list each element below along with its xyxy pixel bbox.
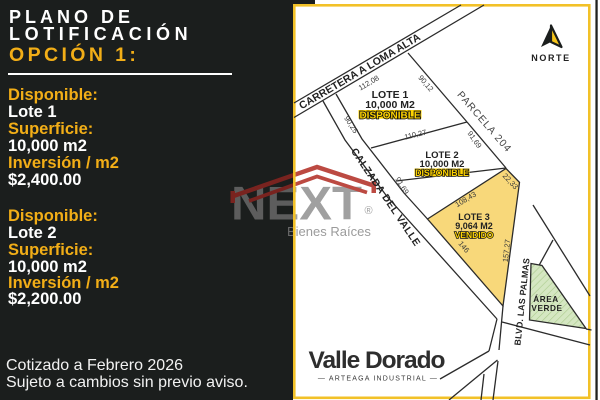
svg-text:ÁREA: ÁREA <box>533 294 559 304</box>
svg-text:Valle Dorado: Valle Dorado <box>309 347 446 374</box>
svg-text:110,27: 110,27 <box>403 128 427 142</box>
svg-text:®: ® <box>365 205 373 217</box>
svg-text:BLVD. LAS PALMAS: BLVD. LAS PALMAS <box>512 257 531 345</box>
svg-text:90,12: 90,12 <box>416 73 435 93</box>
svg-text:DISPONIBLE: DISPONIBLE <box>415 168 469 178</box>
svg-text:DISPONIBLE: DISPONIBLE <box>359 111 420 122</box>
svg-text:Bienes Raíces: Bienes Raíces <box>287 224 371 239</box>
svg-text:VENDIDO: VENDIDO <box>455 230 494 240</box>
svg-text:91,69: 91,69 <box>465 129 483 150</box>
svg-text:10,000 M2: 10,000 M2 <box>365 99 415 111</box>
svg-text:— ARTEAGA INDUSTRIAL —: — ARTEAGA INDUSTRIAL — <box>318 376 438 383</box>
svg-text:157,27: 157,27 <box>501 239 512 263</box>
svg-text:NORTE: NORTE <box>531 53 571 63</box>
svg-text:VERDE: VERDE <box>531 304 562 313</box>
svg-text:91,69: 91,69 <box>393 175 411 196</box>
